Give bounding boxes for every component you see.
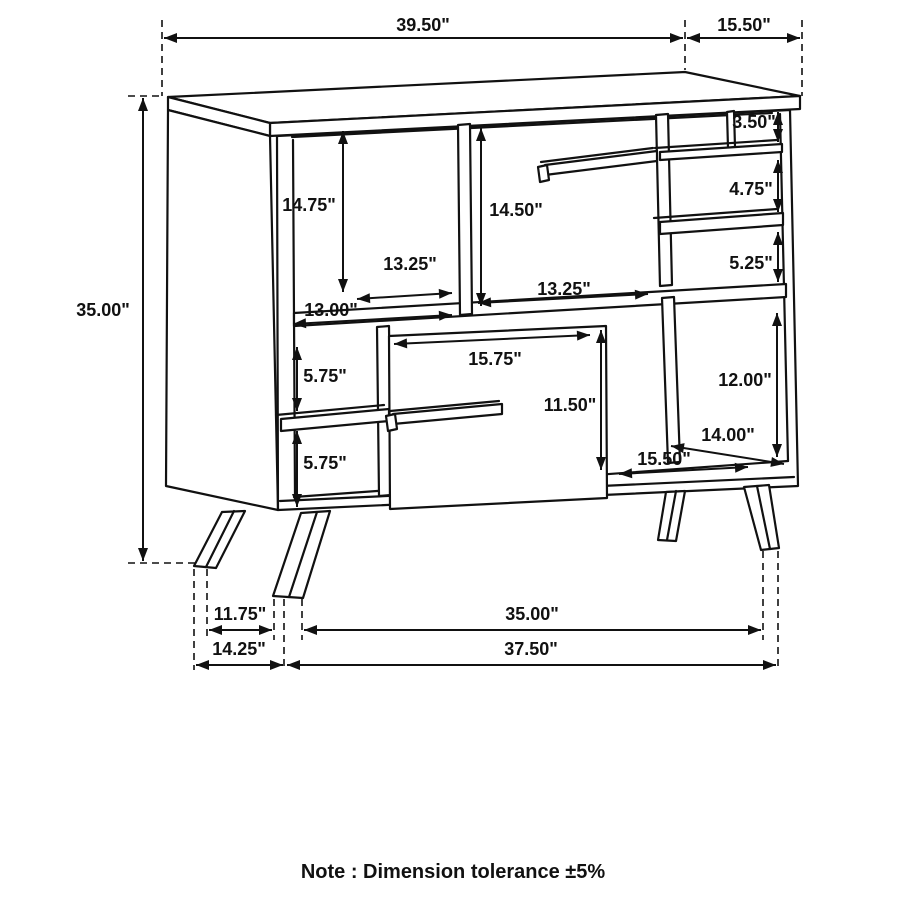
- dim-leg-span-width: 35.00": [505, 604, 559, 624]
- dim-lower-right-width: 15.50": [637, 449, 691, 469]
- dim-overall-depth: 15.50": [717, 15, 771, 35]
- front-left-leg: [273, 511, 330, 598]
- dim-door-height: 11.50": [544, 395, 597, 415]
- upper-divider-left: [458, 124, 472, 315]
- dim-right-cubby-middle: 4.75": [729, 179, 773, 199]
- dim-upper-left-height: 14.75": [282, 195, 336, 215]
- cabinet-dimension-diagram: 39.50" 15.50" 35.00" 14.75" 14.50" 13.25…: [0, 0, 900, 900]
- front-right-leg: [744, 485, 779, 550]
- left-side-panel: [166, 110, 278, 510]
- cabinet-structure: [166, 72, 800, 598]
- dim-upper-center-height: 14.50": [489, 200, 543, 220]
- dim-overall-height: 35.00": [76, 300, 130, 320]
- dim-door-width: 15.75": [468, 349, 522, 369]
- dim-lower-right-height: 12.00": [718, 370, 772, 390]
- tolerance-note: Note : Dimension tolerance ±5%: [301, 861, 606, 883]
- dim-overall-width: 39.50": [396, 15, 450, 35]
- upper-divider-right: [656, 114, 672, 286]
- back-left-leg: [194, 511, 245, 568]
- dim-leg-clearance: 11.75": [214, 604, 267, 624]
- dim-right-cubby-bottom: 5.25": [729, 253, 773, 273]
- dim-leg-span-depth: 14.25": [212, 639, 266, 659]
- dim-lower-right-depth: 14.00": [701, 425, 755, 445]
- dim-upper-center-width: 13.25": [537, 279, 591, 299]
- dim-lower-left-cubby-top: 5.75": [303, 366, 347, 386]
- back-right-leg: [658, 491, 685, 541]
- dim-upper-left-shelf: 13.00": [304, 300, 358, 320]
- dim-lower-left-cubby-bottom: 5.75": [303, 453, 347, 473]
- dim-upper-left-width: 13.25": [383, 254, 437, 274]
- dim-right-cubby-top: 3.50": [732, 112, 776, 132]
- dim-base-width: 37.50": [504, 639, 558, 659]
